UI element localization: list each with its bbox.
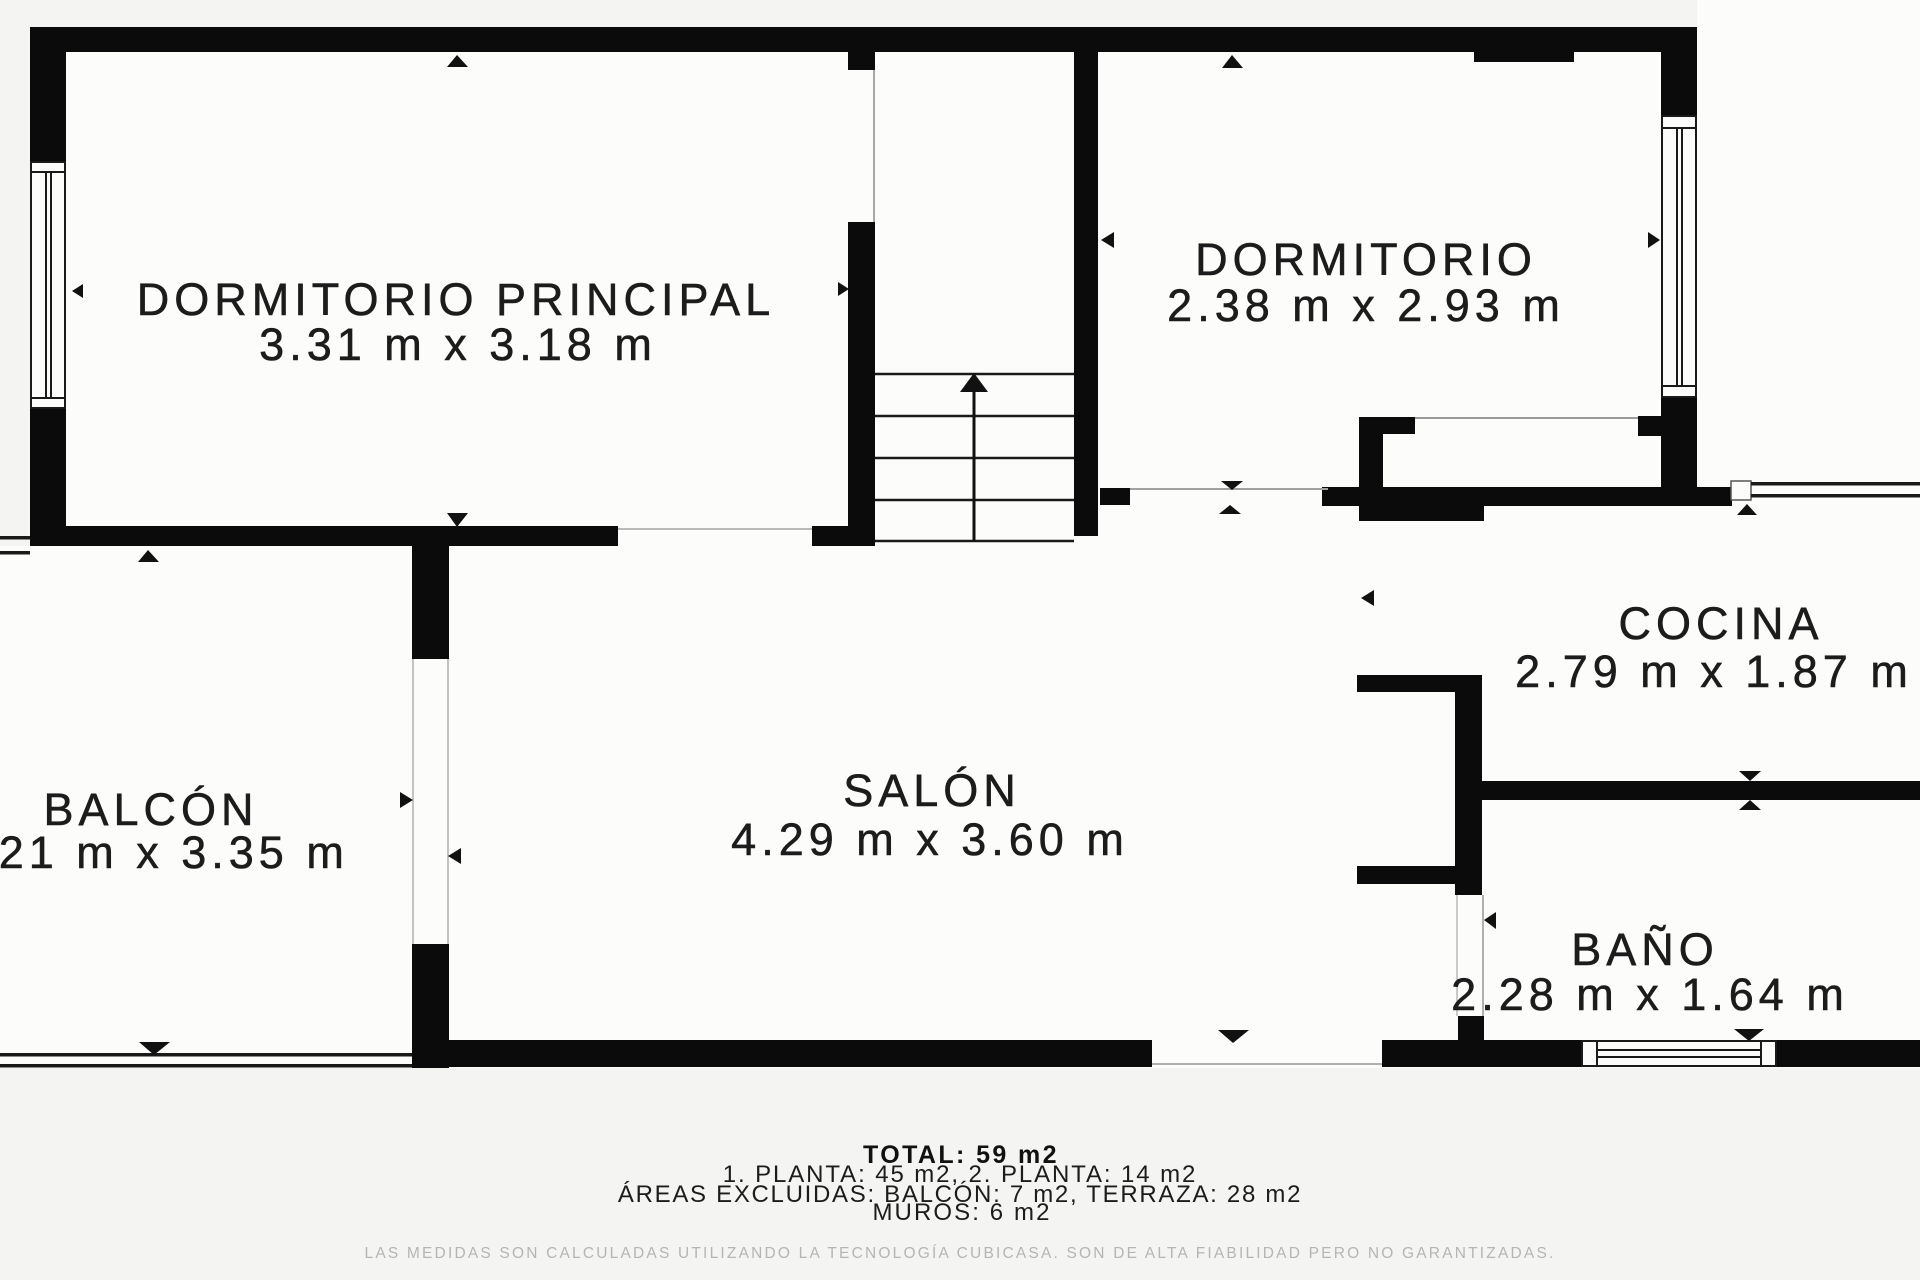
svg-text:2.28 m x 1.64 m: 2.28 m x 1.64 m: [1451, 969, 1849, 1020]
svg-text:SALÓN: SALÓN: [843, 765, 1021, 816]
svg-text:3.21 m x 3.35 m: 3.21 m x 3.35 m: [0, 827, 349, 878]
svg-text:2.38 m x 2.93 m: 2.38 m x 2.93 m: [1167, 280, 1565, 331]
svg-text:DORMITORIO PRINCIPAL: DORMITORIO PRINCIPAL: [137, 274, 775, 325]
svg-text:4.29 m x 3.60 m: 4.29 m x 3.60 m: [731, 814, 1129, 865]
svg-text:DORMITORIO: DORMITORIO: [1195, 234, 1537, 285]
svg-text:2.79 m x 1.87 m: 2.79 m x 1.87 m: [1515, 646, 1913, 697]
svg-text:3.31 m x 3.18 m: 3.31 m x 3.18 m: [259, 319, 657, 370]
svg-text:COCINA: COCINA: [1618, 598, 1823, 649]
svg-text:BAÑO: BAÑO: [1571, 924, 1719, 975]
svg-text:MUROS: 6 m2: MUROS: 6 m2: [872, 1199, 1051, 1226]
svg-text:LAS MEDIDAS SON CALCULADAS UTI: LAS MEDIDAS SON CALCULADAS UTILIZANDO LA…: [365, 1245, 1556, 1262]
